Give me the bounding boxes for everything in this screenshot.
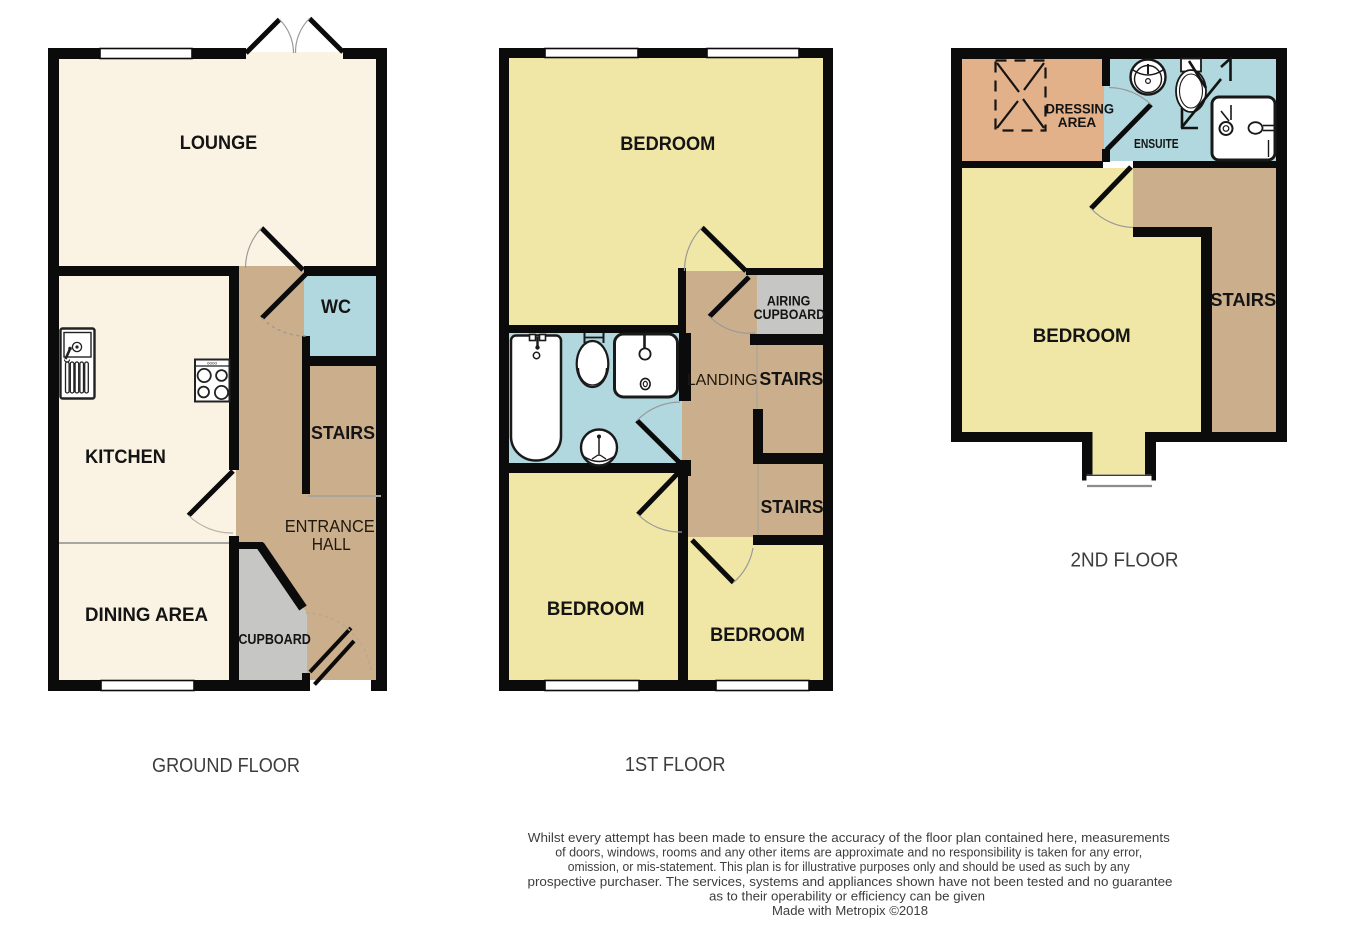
svg-text:KITCHEN: KITCHEN [85, 446, 166, 468]
svg-text:2ND FLOOR: 2ND FLOOR [1071, 549, 1179, 572]
svg-text:AREA: AREA [1058, 115, 1097, 130]
svg-text:STAIRS: STAIRS [1210, 289, 1276, 310]
svg-text:HALL: HALL [312, 534, 351, 554]
svg-text:STAIRS: STAIRS [759, 368, 823, 389]
svg-text:as to their operability or eff: as to their operability or efficiency ca… [709, 888, 985, 903]
svg-text:DINING AREA: DINING AREA [85, 605, 208, 626]
svg-text:BEDROOM: BEDROOM [620, 134, 715, 155]
svg-text:ENSUITE: ENSUITE [1134, 136, 1179, 151]
svg-text:CUPBOARD: CUPBOARD [754, 307, 826, 322]
svg-text:WC: WC [321, 297, 351, 318]
svg-text:omission, or mis-statement. Th: omission, or mis-statement. This plan is… [568, 859, 1130, 874]
svg-text:BEDROOM: BEDROOM [710, 625, 805, 646]
svg-text:BEDROOM: BEDROOM [547, 599, 645, 620]
svg-text:Whilst every attempt has been: Whilst every attempt has been made to en… [528, 830, 1170, 845]
svg-text:Made with Metropix ©2018: Made with Metropix ©2018 [772, 903, 928, 918]
svg-text:BEDROOM: BEDROOM [1033, 325, 1131, 347]
svg-text:1ST FLOOR: 1ST FLOOR [625, 753, 726, 776]
svg-text:LOUNGE: LOUNGE [180, 133, 258, 154]
svg-text:ENTRANCE: ENTRANCE [285, 516, 375, 536]
svg-text:STAIRS: STAIRS [311, 422, 375, 443]
svg-text:CUPBOARD: CUPBOARD [238, 632, 311, 648]
svg-text:GROUND FLOOR: GROUND FLOOR [152, 754, 300, 777]
svg-text:LANDING: LANDING [687, 372, 758, 389]
svg-text:oooo: oooo [207, 361, 218, 366]
svg-text:of doors, windows, rooms and a: of doors, windows, rooms and any other i… [555, 845, 1142, 860]
svg-text:prospective purchaser. The ser: prospective purchaser. The services, sys… [528, 874, 1173, 889]
svg-text:STAIRS: STAIRS [761, 496, 824, 517]
